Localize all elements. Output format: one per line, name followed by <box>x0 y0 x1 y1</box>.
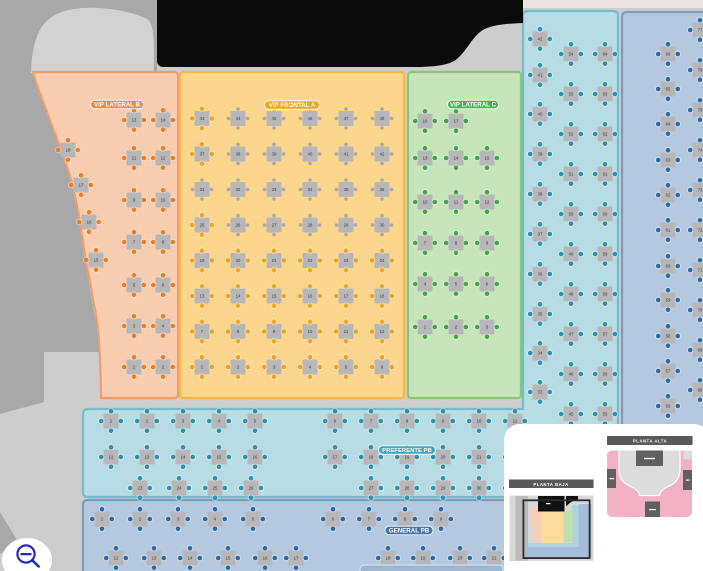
svg-text:53: 53 <box>569 92 574 97</box>
svg-text:46: 46 <box>308 116 313 121</box>
svg-text:12: 12 <box>485 200 490 205</box>
svg-text:63: 63 <box>603 92 608 97</box>
svg-text:36: 36 <box>380 187 385 192</box>
svg-text:PLANTA ALTA: PLANTA ALTA <box>633 439 667 444</box>
svg-text:55: 55 <box>603 412 608 417</box>
svg-text:18: 18 <box>386 556 391 561</box>
svg-text:37: 37 <box>538 232 543 237</box>
svg-text:54: 54 <box>569 52 574 57</box>
svg-text:45: 45 <box>272 116 277 121</box>
svg-text:59: 59 <box>603 252 608 257</box>
svg-text:47: 47 <box>569 332 574 337</box>
svg-text:64: 64 <box>666 122 671 127</box>
svg-text:26: 26 <box>236 223 241 228</box>
svg-text:16: 16 <box>308 294 313 299</box>
svg-text:35: 35 <box>538 312 543 317</box>
svg-text:15: 15 <box>217 455 222 460</box>
svg-text:16: 16 <box>263 556 268 561</box>
svg-text:47: 47 <box>344 116 349 121</box>
svg-text:61: 61 <box>603 172 608 177</box>
svg-text:72: 72 <box>698 228 703 233</box>
svg-text:68: 68 <box>698 388 703 393</box>
svg-text:38: 38 <box>538 192 543 197</box>
svg-text:14: 14 <box>161 118 166 123</box>
svg-text:17: 17 <box>294 556 299 561</box>
svg-text:14: 14 <box>181 455 186 460</box>
svg-text:VIP FRONTAL A: VIP FRONTAL A <box>269 102 316 109</box>
svg-text:14: 14 <box>188 556 193 561</box>
svg-text:24: 24 <box>177 486 182 491</box>
svg-text:23: 23 <box>344 258 349 263</box>
svg-text:13: 13 <box>145 455 150 460</box>
svg-text:10: 10 <box>161 198 166 203</box>
svg-text:19: 19 <box>421 556 426 561</box>
svg-text:62: 62 <box>603 132 608 137</box>
svg-text:46: 46 <box>569 372 574 377</box>
svg-text:10: 10 <box>477 419 482 424</box>
svg-text:15: 15 <box>485 156 490 161</box>
svg-text:25: 25 <box>200 223 205 228</box>
svg-text:18: 18 <box>380 294 385 299</box>
svg-text:32: 32 <box>236 187 241 192</box>
svg-text:PREFERENTE PB: PREFERENTE PB <box>382 448 431 454</box>
svg-text:56: 56 <box>666 404 671 409</box>
svg-text:29: 29 <box>441 486 446 491</box>
svg-text:15: 15 <box>94 258 99 263</box>
svg-text:35: 35 <box>344 187 349 192</box>
svg-text:14: 14 <box>454 156 459 161</box>
svg-text:37: 37 <box>200 152 205 157</box>
svg-text:19: 19 <box>405 455 410 460</box>
svg-text:21: 21 <box>492 556 497 561</box>
svg-text:57: 57 <box>603 332 608 337</box>
svg-text:48: 48 <box>380 116 385 121</box>
svg-text:12: 12 <box>161 156 166 161</box>
svg-text:70: 70 <box>698 308 703 313</box>
svg-text:49: 49 <box>569 252 574 257</box>
svg-text:12: 12 <box>109 455 114 460</box>
svg-text:75: 75 <box>698 108 703 113</box>
svg-text:17: 17 <box>79 183 84 188</box>
svg-text:20: 20 <box>458 556 463 561</box>
svg-text:29: 29 <box>344 223 349 228</box>
svg-text:12: 12 <box>114 556 119 561</box>
svg-text:74: 74 <box>698 148 703 153</box>
svg-text:20: 20 <box>441 455 446 460</box>
svg-text:38: 38 <box>236 152 241 157</box>
svg-text:20: 20 <box>236 258 241 263</box>
svg-text:56: 56 <box>603 372 608 377</box>
svg-text:76: 76 <box>698 68 703 73</box>
svg-text:28: 28 <box>308 223 313 228</box>
svg-text:13: 13 <box>200 294 205 299</box>
svg-text:34: 34 <box>538 351 543 356</box>
svg-text:12: 12 <box>380 329 385 334</box>
svg-text:15: 15 <box>272 294 277 299</box>
svg-text:65: 65 <box>666 87 671 92</box>
svg-text:71: 71 <box>698 268 703 273</box>
svg-text:16: 16 <box>87 220 92 225</box>
svg-text:15: 15 <box>226 556 231 561</box>
svg-text:62: 62 <box>666 193 671 198</box>
svg-text:18: 18 <box>66 148 71 153</box>
svg-text:11: 11 <box>454 200 459 205</box>
svg-text:42: 42 <box>380 152 385 157</box>
svg-text:18: 18 <box>369 455 374 460</box>
svg-text:VIP LATERAL B: VIP LATERAL B <box>94 102 141 109</box>
svg-text:21: 21 <box>477 455 482 460</box>
svg-text:58: 58 <box>603 292 608 297</box>
svg-text:39: 39 <box>538 152 543 157</box>
svg-text:11: 11 <box>513 419 518 424</box>
svg-text:11: 11 <box>132 156 137 161</box>
svg-text:33: 33 <box>272 187 277 192</box>
svg-text:69: 69 <box>698 348 703 353</box>
svg-text:25: 25 <box>213 486 218 491</box>
svg-text:13: 13 <box>152 556 157 561</box>
svg-text:27: 27 <box>272 223 277 228</box>
svg-text:26: 26 <box>249 486 254 491</box>
svg-text:11: 11 <box>344 329 349 334</box>
svg-text:17: 17 <box>344 294 349 299</box>
svg-text:57: 57 <box>666 369 671 374</box>
svg-text:23: 23 <box>138 486 143 491</box>
svg-text:45: 45 <box>569 412 574 417</box>
svg-text:39: 39 <box>272 152 277 157</box>
svg-text:50: 50 <box>569 212 574 217</box>
svg-text:PLANTA BAJA: PLANTA BAJA <box>533 482 568 487</box>
svg-text:22: 22 <box>308 258 313 263</box>
svg-text:30: 30 <box>477 486 482 491</box>
svg-text:60: 60 <box>603 212 608 217</box>
svg-text:61: 61 <box>666 228 671 233</box>
svg-text:GENERAL PB: GENERAL PB <box>389 528 430 535</box>
svg-text:59: 59 <box>666 298 671 303</box>
svg-text:41: 41 <box>344 152 349 157</box>
svg-text:16: 16 <box>253 455 258 460</box>
svg-text:40: 40 <box>308 152 313 157</box>
svg-text:58: 58 <box>666 334 671 339</box>
svg-text:73: 73 <box>698 188 703 193</box>
svg-text:52: 52 <box>569 132 574 137</box>
svg-text:36: 36 <box>538 272 543 277</box>
svg-text:40: 40 <box>538 112 543 117</box>
svg-text:VIP LATERAL C: VIP LATERAL C <box>450 102 497 109</box>
svg-text:30: 30 <box>380 223 385 228</box>
svg-text:48: 48 <box>569 292 574 297</box>
svg-text:16: 16 <box>423 119 428 124</box>
svg-text:10: 10 <box>423 200 428 205</box>
svg-text:31: 31 <box>200 187 205 192</box>
svg-text:64: 64 <box>603 52 608 57</box>
svg-text:51: 51 <box>569 172 574 177</box>
svg-text:17: 17 <box>454 119 459 124</box>
svg-text:77: 77 <box>698 28 703 33</box>
svg-text:13: 13 <box>132 118 137 123</box>
svg-text:28: 28 <box>405 486 410 491</box>
svg-text:43: 43 <box>200 116 205 121</box>
svg-text:27: 27 <box>369 486 374 491</box>
svg-text:10: 10 <box>308 329 313 334</box>
svg-text:14: 14 <box>236 294 241 299</box>
svg-text:17: 17 <box>333 455 338 460</box>
svg-text:24: 24 <box>380 258 385 263</box>
svg-text:44: 44 <box>236 116 241 121</box>
svg-text:66: 66 <box>666 52 671 57</box>
svg-text:19: 19 <box>200 258 205 263</box>
svg-text:63: 63 <box>666 158 671 163</box>
svg-text:41: 41 <box>538 73 543 78</box>
svg-text:60: 60 <box>666 264 671 269</box>
svg-text:42: 42 <box>538 37 543 42</box>
svg-text:21: 21 <box>272 258 277 263</box>
svg-text:13: 13 <box>423 156 428 161</box>
svg-text:33: 33 <box>538 390 543 395</box>
svg-text:34: 34 <box>308 187 313 192</box>
